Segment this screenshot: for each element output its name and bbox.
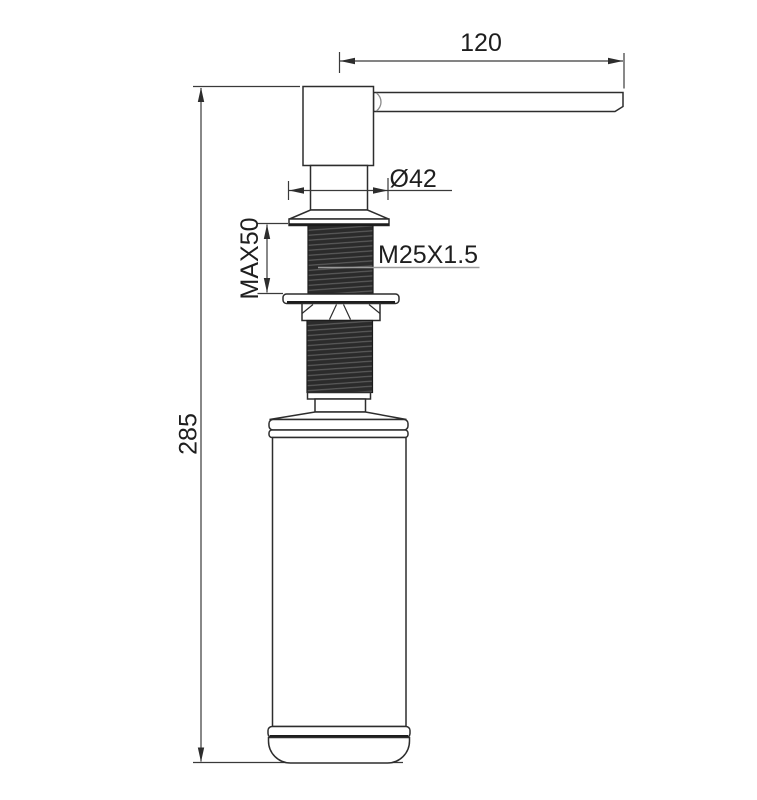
threaded-shaft-upper (308, 226, 373, 294)
arrowhead-right (608, 58, 623, 64)
pump-head-assembly (303, 87, 623, 211)
arrowhead-right (373, 187, 388, 193)
bottle-shoulder (270, 412, 407, 420)
flange-diameter-label: Ø42 (390, 165, 437, 193)
arrowhead-down (264, 278, 270, 293)
bottle-body (273, 438, 407, 727)
dimension-spout-length: 120 (340, 29, 625, 89)
mounting-flange (289, 210, 389, 226)
arrowhead-left (289, 187, 304, 193)
bottle-top-ring (269, 420, 408, 431)
pump-neck (311, 166, 368, 211)
bottle-neck (315, 399, 366, 412)
spout-length-label: 120 (460, 29, 502, 57)
pump-head (303, 87, 374, 166)
soap-dispenser-technical-drawing: 285 120 Ø42 MAX50 (0, 0, 757, 800)
drawing-canvas: 285 120 Ø42 MAX50 (0, 0, 757, 800)
arrowhead-up (264, 225, 270, 240)
bottle-base (269, 738, 410, 764)
thread-spec-label: M25X1.5 (378, 241, 478, 269)
arrowhead-up (198, 88, 204, 103)
overall-height-label: 285 (175, 413, 203, 455)
spout (374, 93, 624, 112)
bottle (268, 399, 410, 763)
shaft-collar (308, 393, 371, 400)
washer-and-nut (283, 294, 399, 321)
threaded-shaft-lower (307, 321, 373, 393)
flange-cone (290, 210, 389, 219)
hex-nut (302, 304, 380, 321)
arrowhead-down (198, 748, 204, 763)
bottle-top-band (269, 430, 408, 438)
arrowhead-left (340, 58, 355, 64)
dimension-max-thickness: MAX50 (236, 218, 288, 300)
max-thickness-label: MAX50 (236, 218, 264, 300)
